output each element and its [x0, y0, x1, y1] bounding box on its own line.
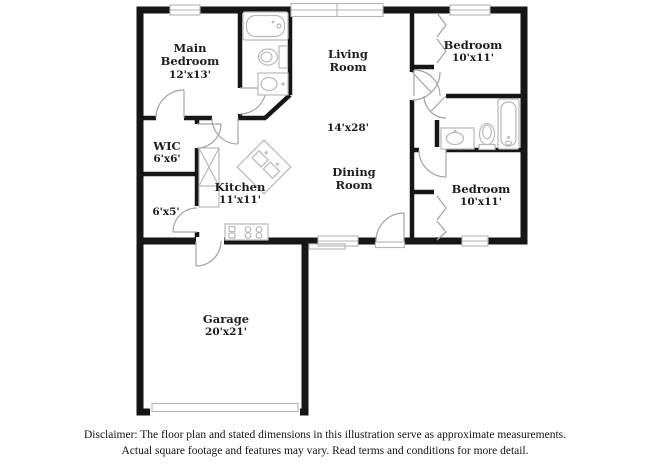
room-dims-hall-closet: 6'x5': [152, 206, 179, 218]
room-dims-bedroom-bottom: 10'x11': [460, 196, 502, 208]
room-dims-garage: 20'x21': [205, 326, 247, 338]
door-main-bedroom: [156, 90, 184, 118]
room-label-bedroom-top: Bedroom: [444, 38, 503, 52]
window-living-room: [291, 4, 383, 17]
room-label-kitchen: Kitchen: [215, 180, 266, 194]
door-front-entry: [376, 213, 404, 241]
room-dims-living-room: 14'x28': [327, 122, 369, 134]
room-label-wic: WIC: [152, 139, 180, 153]
bifold-closet-top-1: [437, 13, 446, 37]
sink-vanity-icon: [258, 73, 288, 95]
floor-plan-drawing: Main Bedroom 12'x13' Living Room 14'x28'…: [0, 0, 650, 473]
door-bath2: [424, 96, 446, 118]
door-bedroom-bottom: [419, 150, 446, 177]
window-main-bedroom: [170, 5, 200, 15]
sink-vanity-icon: [441, 128, 474, 149]
main-bath-fixtures: [243, 12, 288, 95]
window-bedroom-top: [450, 5, 490, 15]
room-label-living-room-1: Living: [328, 47, 368, 61]
bifold-closet-bottom-1: [437, 196, 446, 220]
room-dims-wic: 6'x6': [153, 153, 180, 165]
disclaimer-line-1: Disclaimer: The floor plan and stated di…: [84, 429, 566, 441]
floor-plan-page: Main Bedroom 12'x13' Living Room 14'x28'…: [0, 0, 650, 473]
room-label-dining-1: Dining: [332, 165, 375, 179]
bathtub-icon: [243, 12, 288, 40]
bath2-fixtures: [441, 99, 519, 150]
room-dims-bedroom-top: 10'x11': [452, 52, 494, 64]
door-hall-to-kitchen: [212, 118, 238, 144]
room-label-main-bedroom-2: Bedroom: [161, 54, 220, 68]
door-bedroom-top: [414, 70, 440, 96]
door-wic: [197, 124, 221, 148]
stove-icon: [225, 224, 268, 240]
room-dims-main-bedroom: 12'x13': [169, 69, 211, 81]
room-label-bedroom-bottom: Bedroom: [452, 182, 511, 196]
window-bedroom-bottom: [462, 236, 488, 246]
bathtub-icon: [498, 99, 519, 149]
room-label-dining-2: Room: [335, 178, 372, 192]
pantry-shelves-icon: [199, 148, 219, 207]
garage-door: [152, 404, 298, 412]
room-dims-kitchen: 11'x11': [219, 194, 261, 206]
toilet-icon: [479, 124, 495, 150]
room-label-main-bedroom-1: Main: [174, 41, 208, 55]
disclaimer: Disclaimer: The floor plan and stated di…: [84, 429, 566, 457]
room-label-living-room-2: Room: [329, 60, 366, 74]
toilet-icon: [259, 46, 288, 68]
bifold-closet-bottom-2: [437, 221, 446, 240]
disclaimer-line-2: Actual square footage and features may v…: [121, 445, 528, 457]
room-label-garage: Garage: [203, 312, 249, 326]
